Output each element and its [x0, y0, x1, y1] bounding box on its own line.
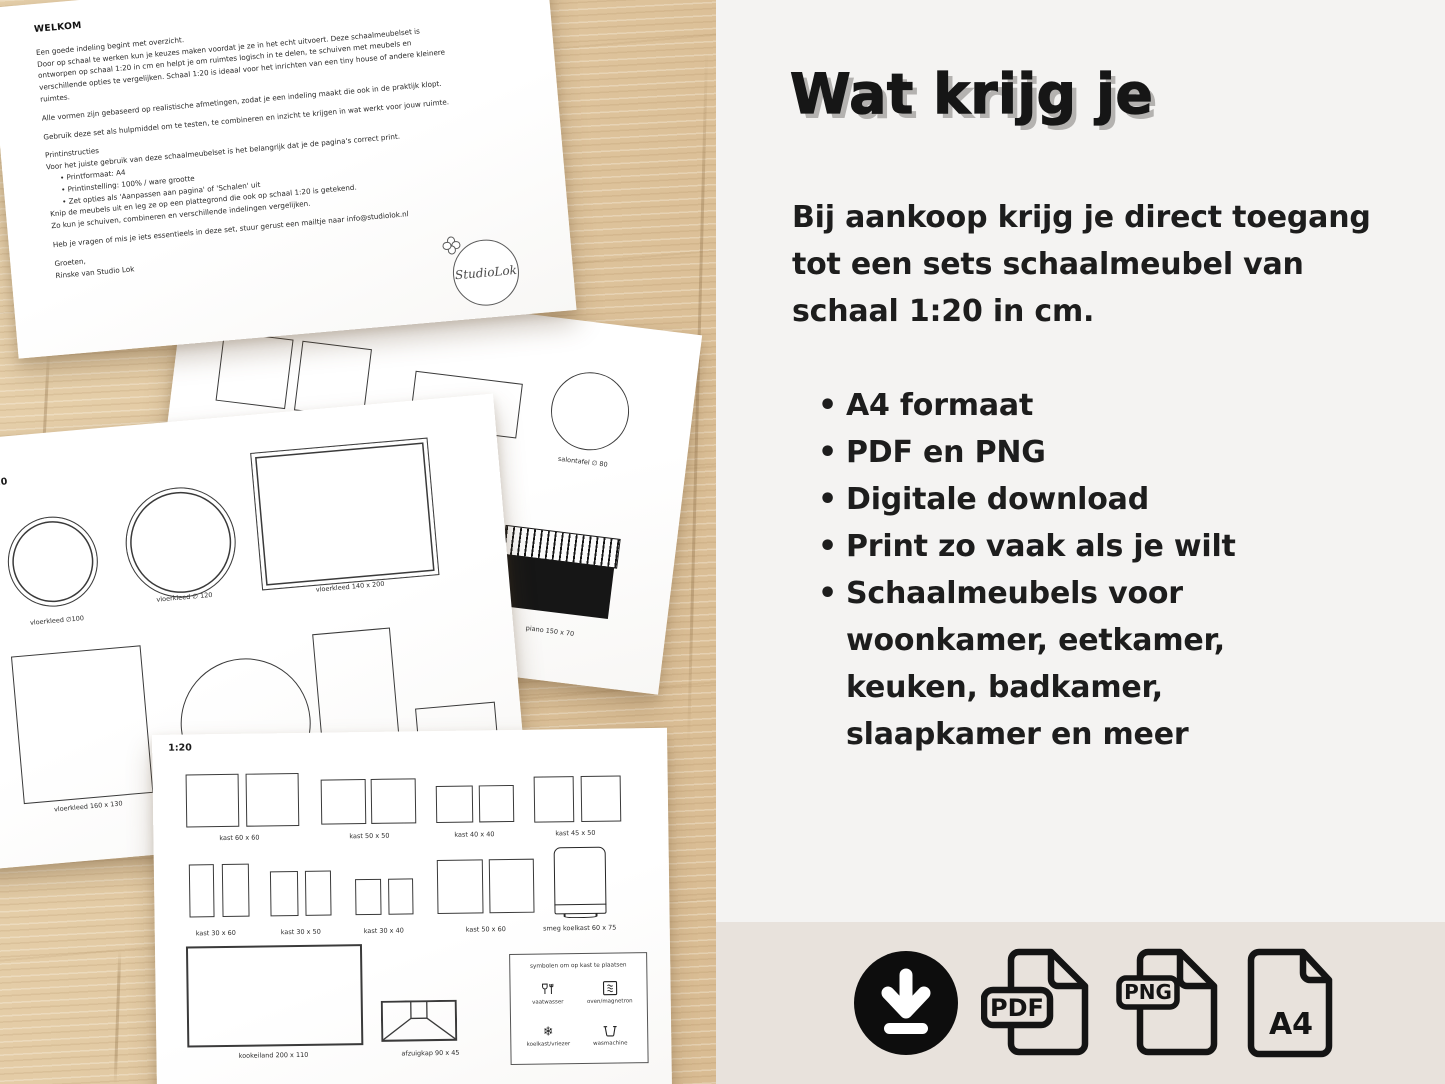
intro-text: Bij aankoop krijg je direct toegang tot …	[792, 194, 1371, 335]
kast-shape	[189, 864, 215, 917]
shape-label: kookeiland 200 x 110	[213, 1050, 333, 1060]
afzuigkap-shape	[381, 1000, 458, 1043]
vaatwasser-icon	[516, 980, 578, 998]
pdf-file-icon: PDF	[981, 948, 1093, 1058]
kast-shape	[355, 879, 382, 915]
list-item: Schaalmeubels voor woonkamer, eetkamer, …	[792, 570, 1236, 758]
intro-line: tot een sets schaalmeubel van	[792, 241, 1371, 288]
shape-label: kast 50 x 50	[309, 831, 429, 841]
shape-label: kast 45 x 50	[515, 828, 635, 838]
symbol-cell: ❄ koelkast/vriezer	[517, 1022, 579, 1048]
a4-file-icon: A4	[1245, 948, 1335, 1058]
salontafel-circle-shape	[547, 368, 634, 455]
shape-label: kast 60 x 60	[179, 833, 299, 843]
kast-shape	[489, 859, 535, 914]
kookeiland-shape	[186, 944, 363, 1047]
symbols-box: symbolen om op kast te plaatsen vaatwass…	[509, 952, 649, 1065]
list-item: Print zo vaak als je wilt	[792, 523, 1236, 570]
intro-line: schaal 1:20 in cm.	[792, 288, 1371, 335]
logo-text: StudioLok	[454, 263, 517, 282]
list-item: Digitale download	[792, 476, 1236, 523]
feature-list: A4 formaat PDF en PNG Digitale download …	[792, 382, 1236, 758]
kast-shape	[534, 776, 575, 823]
page-title: Wat krijg je	[790, 62, 1153, 126]
kast-shape	[479, 785, 515, 822]
kast-shape	[437, 859, 484, 914]
intro-line: Bij aankoop krijg je direct toegang	[792, 194, 1371, 241]
kast-shape	[321, 779, 367, 825]
sheet-kasten: 1:20 kast 60 x 60 kast 50 x 50 kast 40 x…	[152, 728, 672, 1084]
kast-shape	[270, 871, 299, 916]
scale-label: 1:20	[0, 476, 8, 489]
vloerkleed-rect-shape	[250, 437, 439, 590]
svg-text:PDF: PDF	[990, 994, 1044, 1022]
symbols-title: symbolen om op kast te plaatsen	[510, 962, 646, 970]
welcome-letter: WELKOM Een goede indeling begint met ove…	[0, 0, 577, 359]
file-type-icons: PDF PNG A4	[854, 948, 1335, 1058]
kast-shape	[222, 864, 250, 917]
kast-shape	[246, 773, 300, 827]
kast-shape	[305, 871, 332, 916]
kast-shape	[371, 778, 417, 824]
shape-label: salontafel ∅ 80	[516, 450, 650, 474]
kast-shape	[388, 878, 414, 914]
svg-text:PNG: PNG	[1124, 980, 1172, 1004]
koelkast-shape	[554, 847, 607, 915]
download-icon	[854, 951, 958, 1055]
wasmachine-icon	[579, 1021, 641, 1039]
koelkast-vriezer-icon: ❄	[517, 1022, 579, 1040]
vloerkleed-rect-shape	[11, 645, 153, 804]
vloerkleed-rect-shape	[312, 627, 400, 747]
symbol-cell: oven/magnetron	[578, 979, 640, 1005]
clover-icon	[442, 236, 462, 256]
symbol-cell: vaatwasser	[516, 980, 578, 1006]
shape-label: vloerkleed ∅100	[0, 611, 118, 630]
salontafel-square-shape	[216, 331, 294, 409]
list-item: PDF en PNG	[792, 429, 1236, 476]
kast-shape	[436, 786, 474, 824]
wood-seam	[114, 950, 121, 1084]
studio-lok-logo: StudioLok	[450, 237, 522, 309]
info-panel: Wat krijg je Bij aankoop krijg je direct…	[716, 0, 1445, 1084]
scale-label: 1:20	[168, 742, 192, 753]
shape-label: afzuigkap 90 x 45	[370, 1048, 490, 1058]
png-file-icon: PNG	[1116, 948, 1222, 1058]
shape-label: smeg koelkast 60 x 75	[520, 923, 640, 933]
symbol-cell: wasmachine	[579, 1021, 641, 1047]
oven-magnetron-icon	[578, 979, 640, 997]
list-item: A4 formaat	[792, 382, 1236, 429]
kast-shape	[581, 775, 622, 822]
vloerkleed-circle-shape	[4, 513, 102, 611]
svg-text:A4: A4	[1269, 1007, 1313, 1042]
vloerkleed-circle-shape	[121, 483, 240, 602]
kast-shape	[186, 774, 240, 828]
product-image: 1:20 salontafel 80 x 80 salontafel ∅ 80 …	[0, 0, 1445, 1084]
